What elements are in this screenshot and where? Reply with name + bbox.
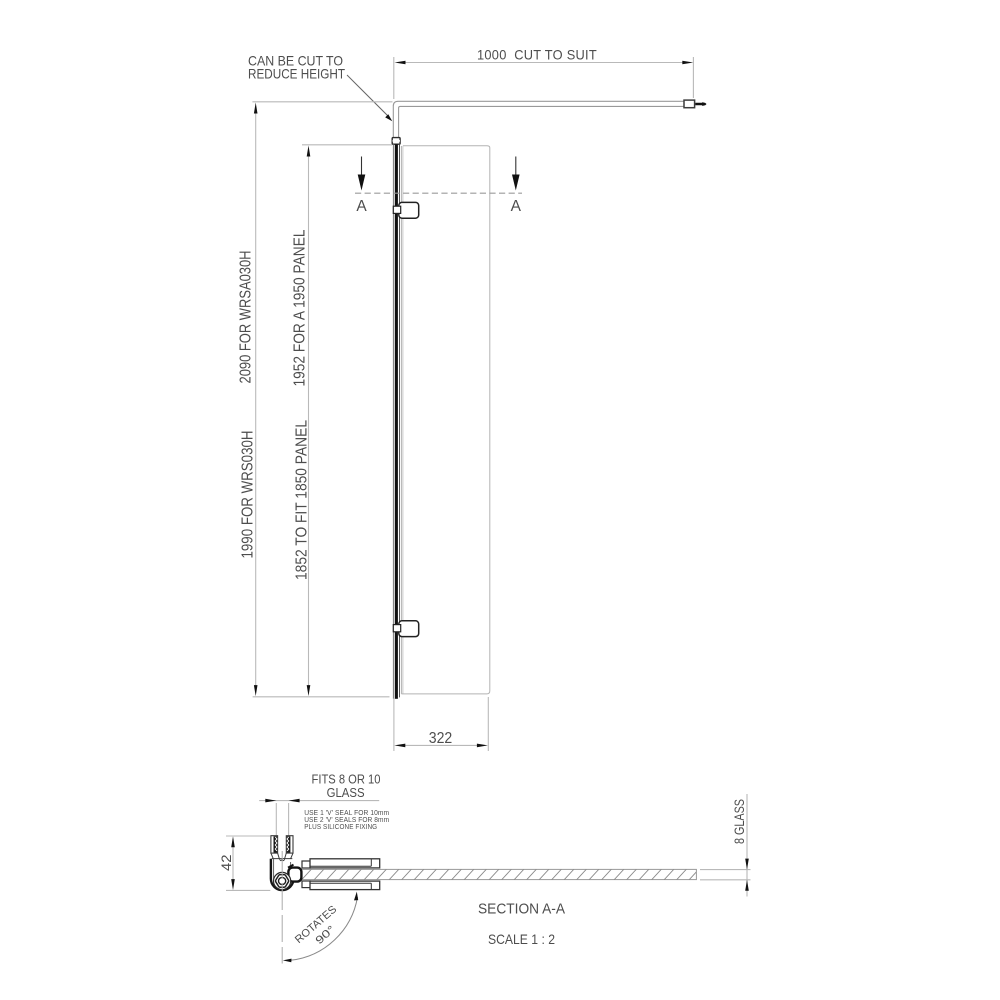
svg-text:1852 TO FIT 1850 PANEL: 1852 TO FIT 1850 PANEL — [294, 420, 311, 580]
svg-text:A: A — [356, 198, 367, 215]
svg-text:FITS 8 OR 10: FITS 8 OR 10 — [312, 773, 381, 787]
svg-text:REDUCE HEIGHT: REDUCE HEIGHT — [248, 66, 345, 82]
svg-text:PLUS SILICONE FIXING: PLUS SILICONE FIXING — [304, 822, 377, 831]
svg-text:322: 322 — [429, 730, 453, 747]
svg-text:A: A — [511, 198, 522, 215]
svg-text:GLASS: GLASS — [327, 786, 365, 800]
svg-text:2090 FOR WRSA030H: 2090 FOR WRSA030H — [237, 251, 254, 384]
svg-text:1952 FOR A 1950 PANEL: 1952 FOR A 1950 PANEL — [292, 229, 309, 386]
svg-text:1990 FOR WRS030H: 1990 FOR WRS030H — [239, 431, 256, 559]
svg-text:1000 CUT TO SUIT: 1000 CUT TO SUIT — [477, 46, 597, 62]
svg-text:42: 42 — [218, 854, 234, 871]
svg-text:8 GLASS: 8 GLASS — [731, 799, 747, 844]
svg-text:SCALE 1 : 2: SCALE 1 : 2 — [488, 931, 555, 947]
svg-text:SECTION A-A: SECTION A-A — [478, 901, 565, 917]
